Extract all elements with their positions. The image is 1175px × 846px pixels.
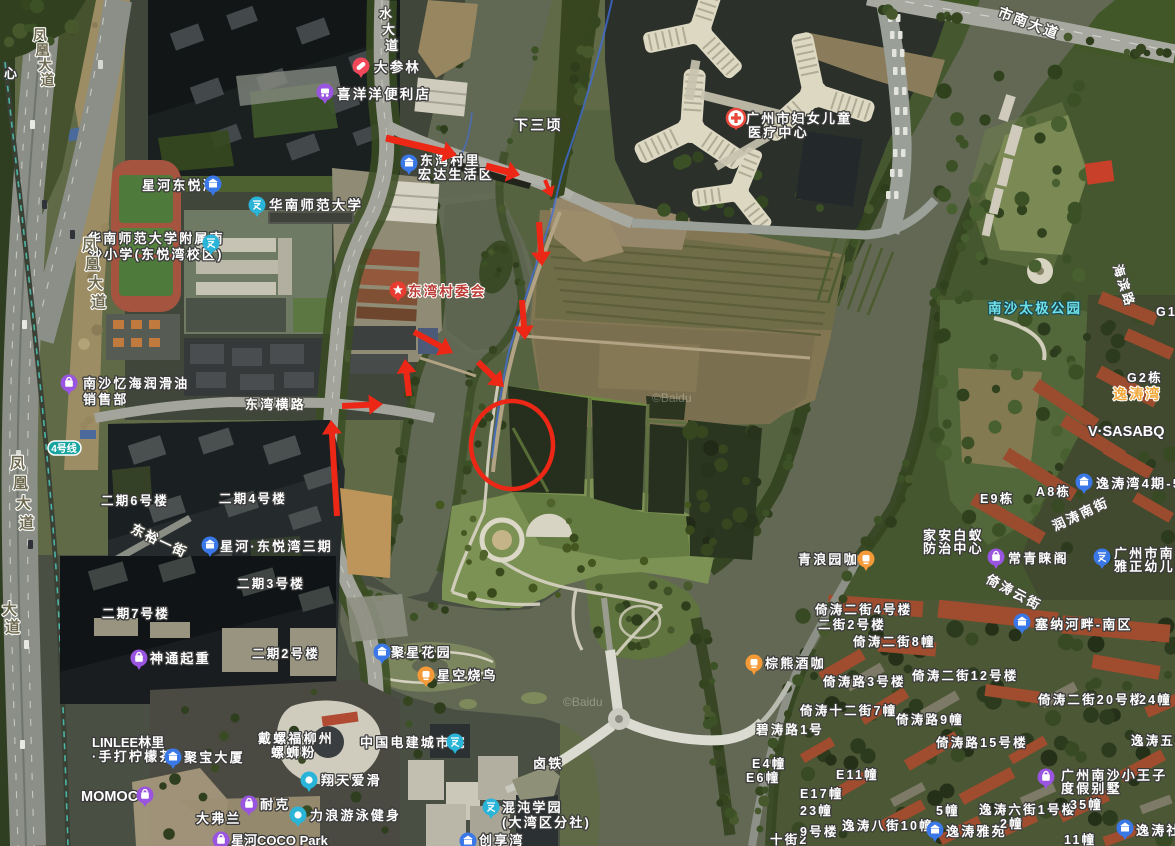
svg-text:(大湾区分社): (大湾区分社) xyxy=(502,815,591,830)
svg-text:神通起重: 神通起重 xyxy=(150,651,211,666)
svg-text:星空烧鸟: 星空烧鸟 xyxy=(437,668,498,683)
svg-text:大: 大 xyxy=(38,57,54,73)
svg-text:逸涛五街: 逸涛五街 xyxy=(1131,733,1175,748)
svg-text:星河·东悦湾三期: 星河·东悦湾三期 xyxy=(220,539,333,554)
svg-text:星河COCO Park: 星河COCO Park xyxy=(231,833,329,846)
svg-text:E9栋: E9栋 xyxy=(980,491,1014,506)
svg-text:沙小学(东悦湾校区): 沙小学(东悦湾校区) xyxy=(89,247,224,262)
svg-text:倚涛路3号楼: 倚涛路3号楼 xyxy=(822,674,906,689)
svg-text:二期2号楼: 二期2号楼 xyxy=(252,646,320,661)
svg-text:常青睐阁: 常青睐阁 xyxy=(1008,551,1069,566)
svg-text:南沙忆海润滑油: 南沙忆海润滑油 xyxy=(83,376,189,391)
svg-text:创享湾: 创享湾 xyxy=(478,833,525,846)
svg-text:戴螺福柳州: 戴螺福柳州 xyxy=(258,731,334,746)
svg-text:混沌学园: 混沌学园 xyxy=(502,800,563,815)
svg-text:道: 道 xyxy=(19,514,36,532)
svg-text:A8栋: A8栋 xyxy=(1036,484,1071,499)
svg-text:二期6号楼: 二期6号楼 xyxy=(101,493,169,508)
svg-text:宏达生活区: 宏达生活区 xyxy=(418,167,494,182)
svg-text:E11幢: E11幢 xyxy=(836,767,879,782)
svg-text:翔天爱滑: 翔天爱滑 xyxy=(320,773,382,788)
svg-text:道: 道 xyxy=(5,618,22,636)
svg-text:逸涛雅苑: 逸涛雅苑 xyxy=(946,824,1007,839)
svg-text:凰: 凰 xyxy=(85,256,102,273)
svg-text:雅正幼儿园: 雅正幼儿园 xyxy=(1114,559,1175,574)
svg-text:耐克: 耐克 xyxy=(260,797,290,812)
svg-text:倚涛路15号楼: 倚涛路15号楼 xyxy=(935,735,1028,750)
svg-text:逸涛湾: 逸涛湾 xyxy=(1113,386,1162,402)
svg-text:逸涛八街10幢: 逸涛八街10幢 xyxy=(842,818,934,833)
svg-text:9号楼: 9号楼 xyxy=(800,824,839,839)
svg-text:道: 道 xyxy=(41,72,57,88)
svg-text:南沙太极公园: 南沙太极公园 xyxy=(988,300,1082,316)
svg-text:东湾横路: 东湾横路 xyxy=(245,397,306,412)
svg-text:广州市妇女儿童: 广州市妇女儿童 xyxy=(746,111,852,126)
svg-text:LINLEE林里: LINLEE林里 xyxy=(92,735,164,750)
svg-text:大: 大 xyxy=(16,494,33,512)
svg-text:塞纳河畔-南区: 塞纳河畔-南区 xyxy=(1035,617,1133,632)
svg-text:大: 大 xyxy=(88,274,105,292)
svg-text:倚涛二街8幢: 倚涛二街8幢 xyxy=(852,634,936,649)
svg-text:4号线: 4号线 xyxy=(51,442,77,455)
svg-text:力浪游泳健身: 力浪游泳健身 xyxy=(310,808,401,823)
svg-text:倚涛二街12号楼: 倚涛二街12号楼 xyxy=(911,668,1019,683)
svg-text:大: 大 xyxy=(382,22,397,37)
svg-text:24幢: 24幢 xyxy=(1139,692,1172,707)
svg-text:2幢: 2幢 xyxy=(1000,816,1024,831)
svg-text:卤铁: 卤铁 xyxy=(533,756,563,771)
svg-text:逸涛湾4期-5号: 逸涛湾4期-5号 xyxy=(1096,476,1175,491)
svg-text:凰: 凰 xyxy=(36,42,52,58)
svg-text:5幢: 5幢 xyxy=(936,803,960,818)
svg-text:防治中心: 防治中心 xyxy=(923,541,984,556)
svg-text:倚涛二街20号楼: 倚涛二街20号楼 xyxy=(1037,692,1145,707)
svg-text:E4幢: E4幢 xyxy=(752,756,786,771)
svg-text:倚涛路9幢: 倚涛路9幢 xyxy=(895,712,964,727)
svg-text:·手打柠檬茶: ·手打柠檬茶 xyxy=(92,749,175,764)
svg-text:G2栋: G2栋 xyxy=(1127,370,1163,385)
svg-text:聚星花园: 聚星花园 xyxy=(390,645,452,660)
svg-text:螺蛳粉: 螺蛳粉 xyxy=(271,745,317,760)
svg-text:大弗兰: 大弗兰 xyxy=(196,811,242,826)
svg-text:©Baidu: ©Baidu xyxy=(652,391,692,405)
svg-text:二期3号楼: 二期3号楼 xyxy=(237,576,305,591)
svg-text:销售部: 销售部 xyxy=(83,392,129,407)
svg-text:道: 道 xyxy=(91,293,108,311)
svg-text:棕熊酒咖: 棕熊酒咖 xyxy=(764,656,826,671)
svg-text:大参林: 大参林 xyxy=(374,59,421,75)
svg-text:二期4号楼: 二期4号楼 xyxy=(219,491,287,506)
svg-text:11幢: 11幢 xyxy=(1064,832,1096,846)
svg-text:度假别墅: 度假别墅 xyxy=(1061,781,1122,796)
svg-text:倚涛十二街7幢: 倚涛十二街7幢 xyxy=(799,703,897,718)
svg-text:心: 心 xyxy=(4,66,19,81)
svg-text:倚涛二街4号楼: 倚涛二街4号楼 xyxy=(814,602,912,617)
svg-text:下三顷: 下三顷 xyxy=(514,117,563,133)
svg-text:逸涛社区: 逸涛社区 xyxy=(1136,823,1175,838)
svg-text:凤: 凤 xyxy=(10,455,27,472)
svg-text:华南师范大学: 华南师范大学 xyxy=(269,197,363,213)
svg-text:二期7号楼: 二期7号楼 xyxy=(102,606,170,621)
svg-text:喜洋洋便利店: 喜洋洋便利店 xyxy=(337,86,431,102)
svg-text:23幢: 23幢 xyxy=(800,803,833,818)
svg-text:聚宝大厦: 聚宝大厦 xyxy=(183,750,245,765)
svg-text:E17幢: E17幢 xyxy=(800,786,844,801)
svg-text:凤: 凤 xyxy=(82,237,99,254)
svg-text:凰: 凰 xyxy=(13,475,30,492)
svg-text:医疗中心: 医疗中心 xyxy=(748,125,809,140)
svg-text:水: 水 xyxy=(379,6,394,21)
svg-text:道: 道 xyxy=(385,38,400,53)
svg-text:大: 大 xyxy=(2,600,19,618)
svg-text:35幢: 35幢 xyxy=(1070,797,1103,812)
svg-text:G1栋: G1栋 xyxy=(1156,304,1175,319)
svg-text:碧涛路1号: 碧涛路1号 xyxy=(755,722,824,737)
svg-text:V·SASABQ: V·SASABQ xyxy=(1088,424,1165,440)
svg-text:二街2号楼: 二街2号楼 xyxy=(818,617,886,632)
svg-text:E6幢: E6幢 xyxy=(746,770,780,785)
svg-text:逸涛六街1号楼: 逸涛六街1号楼 xyxy=(979,802,1076,817)
svg-text:©Baidu: ©Baidu xyxy=(563,695,603,709)
svg-text:东湾村委会: 东湾村委会 xyxy=(408,283,487,299)
svg-text:凤: 凤 xyxy=(33,27,49,43)
